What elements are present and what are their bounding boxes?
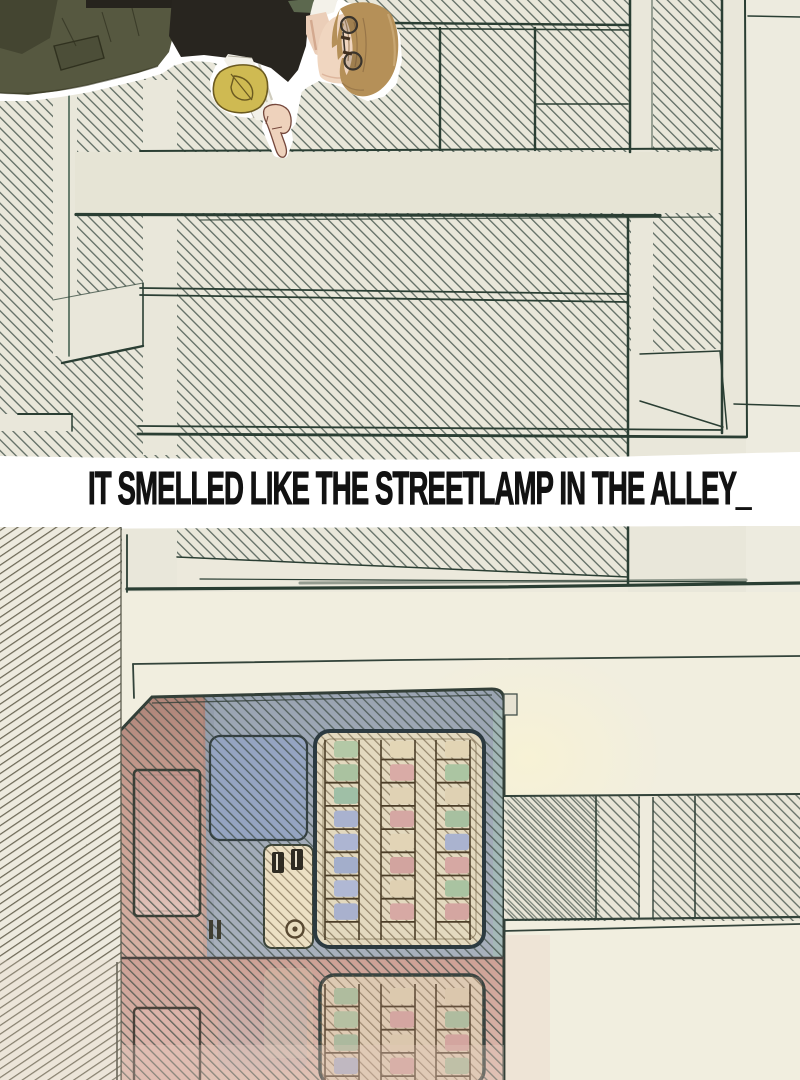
svg-text:IT SMELLED LIKE THE STREETLAMP: IT SMELLED LIKE THE STREETLAMP IN THE AL… <box>88 464 752 515</box>
